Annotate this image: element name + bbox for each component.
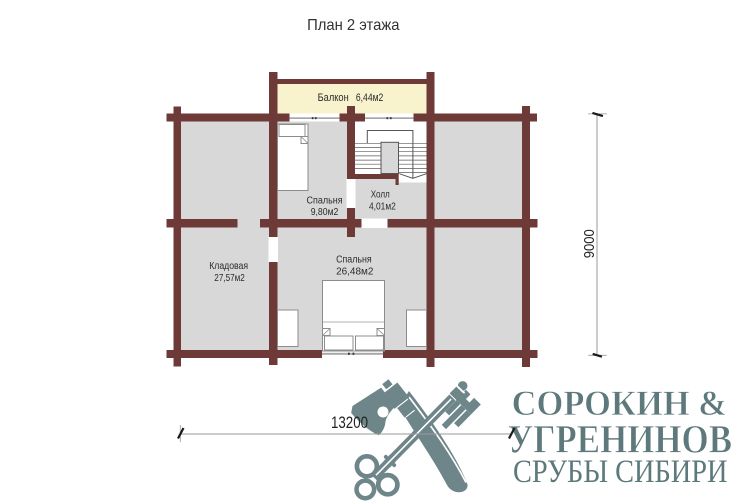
svg-text:Холл: Холл: [371, 189, 390, 200]
svg-text:27,57м2: 27,57м2: [214, 273, 245, 284]
svg-text:Балкон: Балкон: [318, 92, 349, 104]
svg-text:13200: 13200: [331, 414, 368, 432]
svg-text:Спальня: Спальня: [307, 196, 343, 207]
svg-text:План 2 этажа: План 2 этажа: [307, 17, 399, 34]
svg-text:Спальня: Спальня: [336, 254, 372, 265]
svg-text:4,01м2: 4,01м2: [369, 201, 396, 212]
svg-text:СРУБЫ СИБИРИ: СРУБЫ СИБИРИ: [513, 454, 728, 490]
svg-text:6,44м2: 6,44м2: [356, 92, 383, 104]
svg-text:26,48м2: 26,48м2: [336, 267, 374, 278]
svg-text:9,80м2: 9,80м2: [311, 207, 339, 218]
svg-text:Кладовая: Кладовая: [209, 261, 248, 272]
svg-text:9000: 9000: [582, 229, 598, 258]
